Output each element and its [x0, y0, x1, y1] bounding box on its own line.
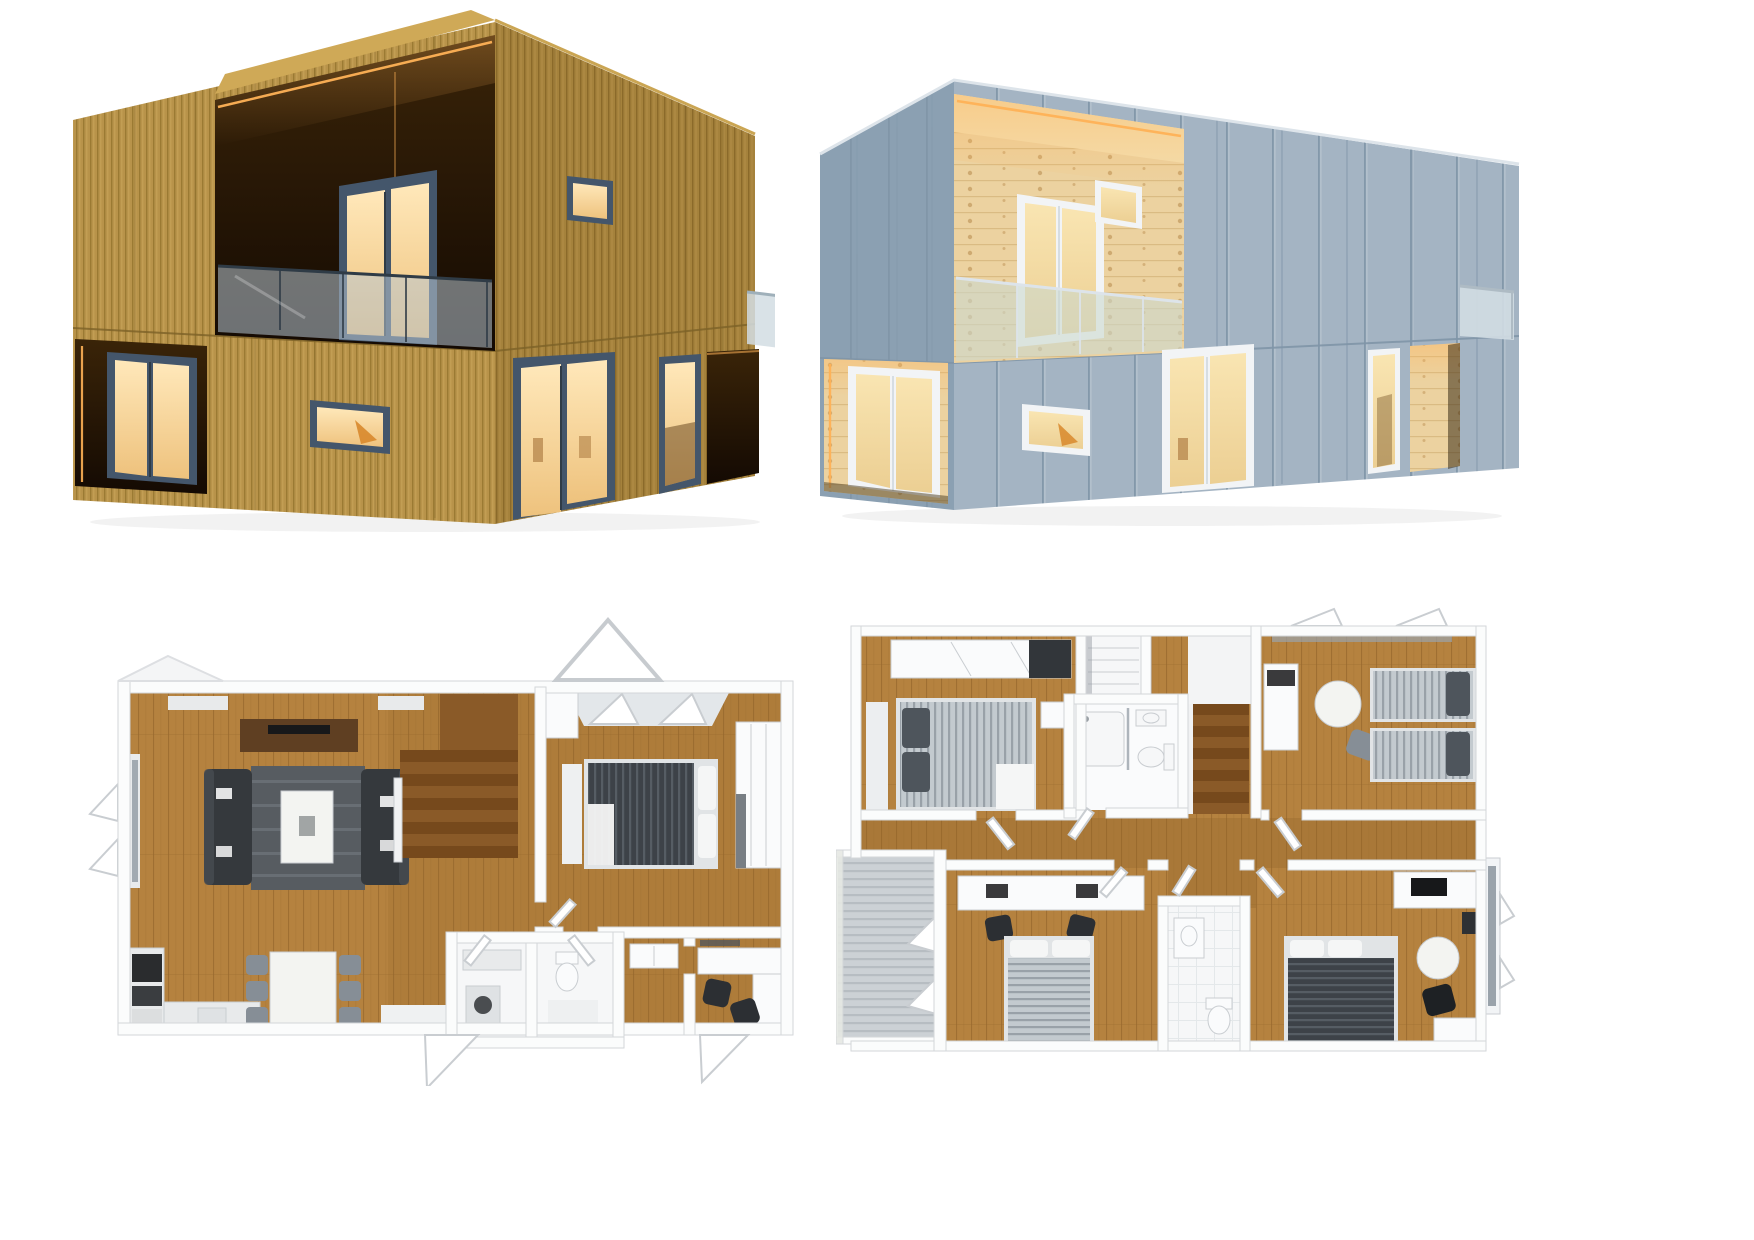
small-horizontal-window	[310, 400, 390, 454]
wardrobe-open-gap	[736, 794, 746, 868]
wardrobe	[736, 722, 781, 868]
cabinet	[1434, 1018, 1481, 1043]
side-window-bay	[1484, 858, 1514, 1014]
round-table	[1315, 681, 1361, 727]
ground-shadow	[842, 506, 1502, 526]
dining-area	[246, 952, 361, 1027]
dining-table	[270, 952, 336, 1026]
dining-chair	[246, 955, 268, 975]
interior-figure-hint	[1377, 394, 1392, 467]
rooflight-outline	[118, 620, 660, 681]
open-window-pane	[1500, 894, 1514, 924]
washer-door	[474, 996, 492, 1014]
sofa	[204, 769, 252, 885]
side-glass-parapet	[747, 292, 775, 350]
lower-left-pine-recess	[824, 359, 948, 504]
interior-shadow	[665, 422, 695, 486]
sink	[198, 1008, 226, 1023]
ground-floor-plan	[48, 556, 808, 1086]
equipment	[1462, 912, 1476, 934]
interior-table-hint	[579, 436, 591, 458]
round-table	[1417, 937, 1459, 979]
bed-bench	[562, 764, 582, 864]
double-bed	[584, 759, 718, 869]
small-upper-window	[1095, 180, 1142, 229]
bench	[866, 702, 888, 810]
window-glass	[132, 760, 138, 882]
sink	[1136, 710, 1166, 726]
shower-room	[1168, 906, 1240, 1043]
recess-french-doors	[848, 366, 940, 498]
dining-chair	[339, 955, 361, 975]
open-window-pane	[1291, 609, 1342, 626]
lower-left-recess	[75, 339, 207, 494]
gray-house-render	[812, 68, 1527, 543]
stair-railing	[1188, 704, 1193, 814]
dining-chair	[339, 981, 361, 1001]
timber-house-render	[55, 8, 775, 538]
desk-monitor	[1076, 884, 1098, 898]
open-entry-door	[425, 1035, 478, 1086]
narrow-tall-window	[1368, 348, 1400, 474]
recessed-entrance	[707, 349, 759, 484]
house-front-face	[73, 22, 495, 524]
desk-monitor	[1411, 878, 1447, 896]
balcony-recess	[954, 94, 1184, 363]
open-window-pane	[90, 839, 118, 876]
wall-shelf	[168, 696, 228, 710]
recess-french-doors	[107, 352, 197, 485]
double-bed	[896, 698, 1036, 811]
house-front-face	[954, 80, 1519, 510]
double-bed	[1004, 936, 1094, 1043]
interior-chair-hint	[533, 438, 543, 462]
toilet	[556, 963, 578, 991]
office-chair	[702, 978, 733, 1009]
large-french-doors	[513, 352, 615, 520]
single-bed	[1370, 728, 1476, 782]
single-bed	[1370, 668, 1476, 722]
stair-railing	[394, 778, 402, 862]
toilet	[1208, 1006, 1230, 1034]
sink-counter	[1174, 918, 1204, 958]
open-window-pane	[1500, 958, 1514, 988]
upper-small-window	[567, 176, 613, 225]
bath-mat	[548, 1000, 598, 1026]
toilet-tank	[1164, 744, 1174, 770]
bathroom	[1074, 704, 1178, 810]
desk-monitor	[986, 884, 1008, 898]
tv-screen	[268, 725, 330, 734]
wardrobe-open	[1029, 640, 1071, 678]
bedroom-wall	[535, 687, 546, 902]
small-horizontal-window	[1022, 404, 1090, 456]
staircase	[1188, 636, 1251, 814]
dining-chair	[246, 981, 268, 1001]
open-door	[700, 1035, 748, 1082]
appliance	[132, 986, 162, 1006]
desk-monitor	[1267, 670, 1295, 686]
upper-floor-plan	[836, 606, 1516, 1071]
entrance-hall	[630, 944, 678, 968]
house-right-face	[495, 22, 759, 528]
entry-shadow	[1448, 343, 1460, 469]
table-decor	[299, 816, 315, 836]
narrow-tall-window	[659, 354, 701, 494]
architectural-presentation-sheet	[0, 0, 1754, 1240]
roof-step	[118, 656, 223, 681]
wall-shelf	[700, 940, 740, 946]
wardrobe-closet	[1086, 636, 1141, 694]
tv-console	[240, 719, 358, 752]
toilet-tank	[556, 952, 578, 964]
wall-shelf	[378, 696, 424, 710]
oven-stack	[132, 954, 162, 982]
balcony-glass-rail	[836, 850, 843, 1044]
open-window-pane	[1396, 609, 1447, 626]
interior-chair-hint	[1178, 438, 1188, 460]
open-window-pane	[90, 784, 118, 821]
double-bed	[1284, 936, 1398, 1043]
side-glass-parapet	[1460, 286, 1514, 340]
toilet	[1138, 747, 1164, 767]
desk	[698, 948, 781, 974]
pine-lined-entrance	[1410, 343, 1460, 472]
large-french-doors	[1162, 344, 1254, 493]
